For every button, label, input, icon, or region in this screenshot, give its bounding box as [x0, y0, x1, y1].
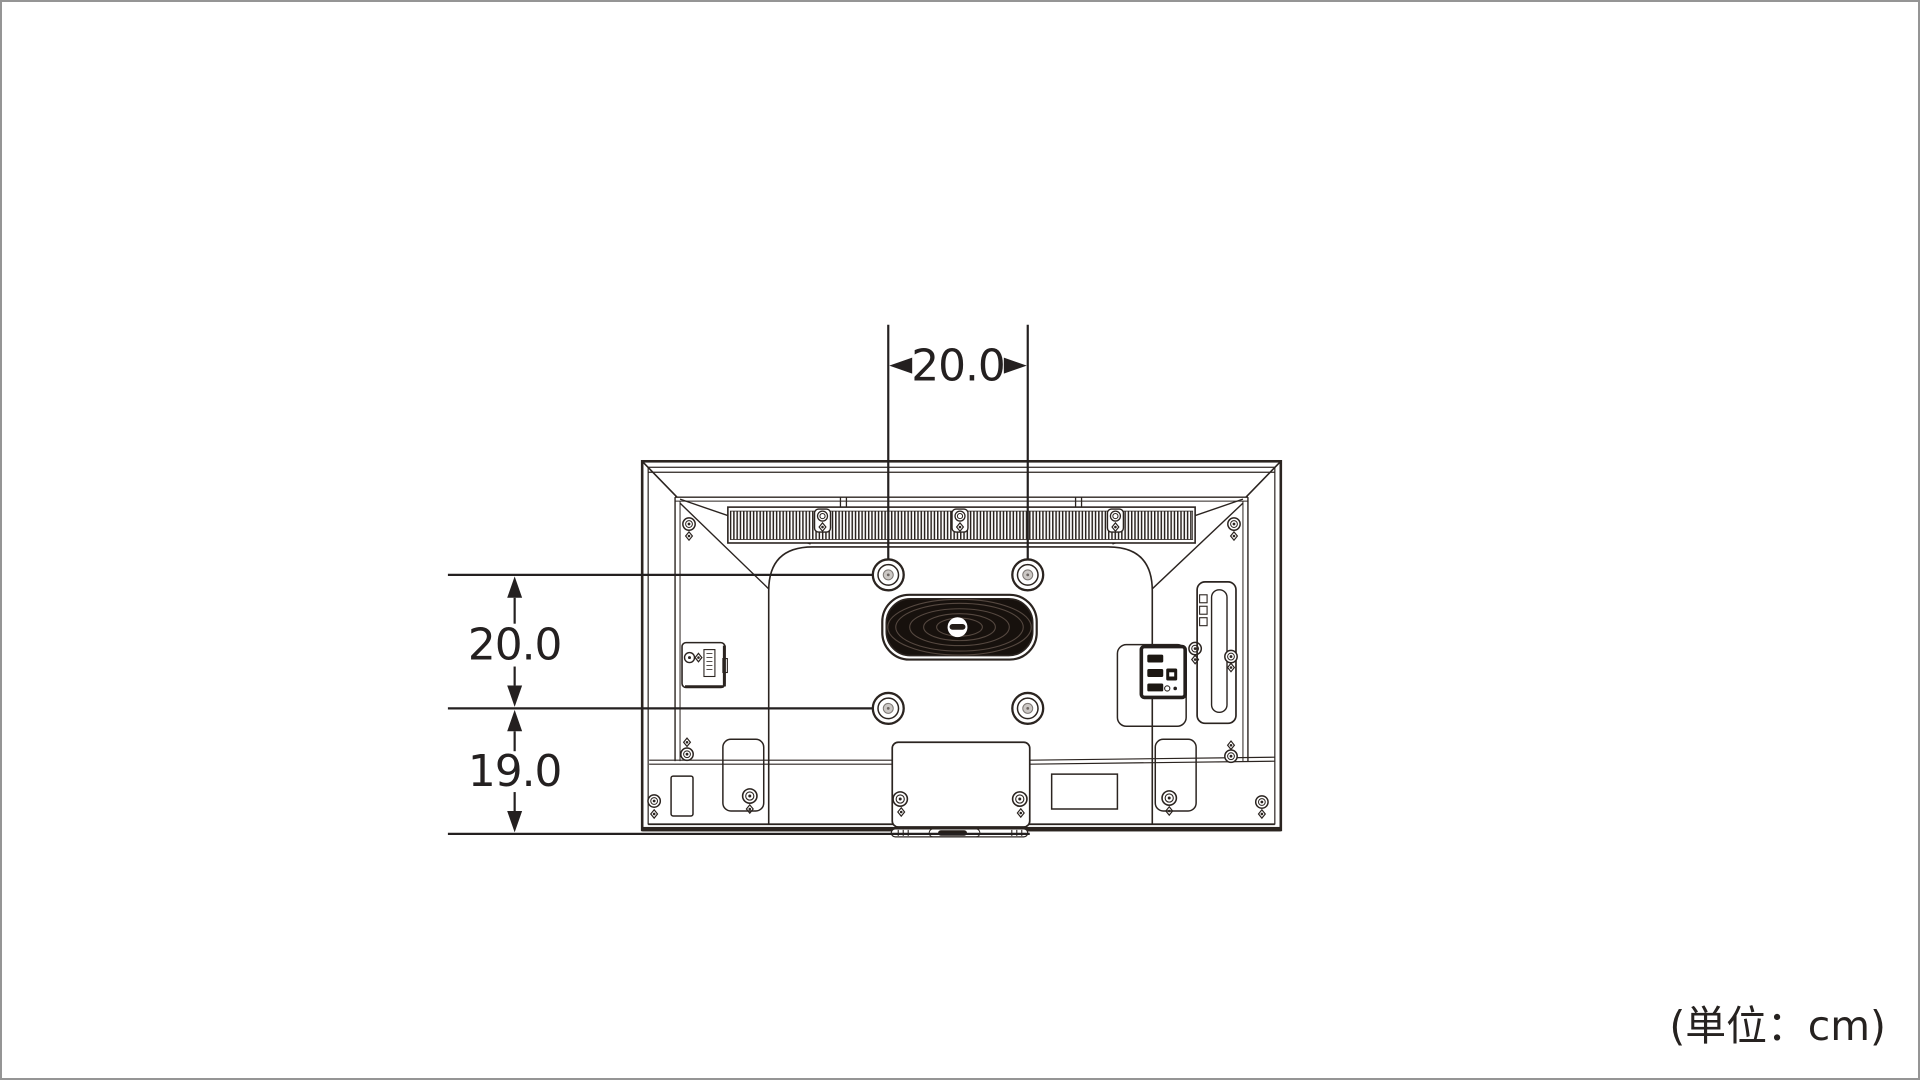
- speaker-center-slot: [950, 624, 966, 630]
- arrow-up-icon: [507, 576, 522, 597]
- vesa-hole-bottom-right: [1012, 693, 1043, 724]
- hdmi-panel: [1117, 642, 1201, 726]
- arrow-right-icon: [1004, 358, 1027, 374]
- arrow-down-icon: [507, 685, 522, 706]
- dim-top-width-label: 20.0: [911, 341, 1005, 392]
- ventilation-grille: [728, 507, 1195, 543]
- diagram-page: 20.0 20.0 19.0 (単位：cm): [0, 0, 1920, 1080]
- vesa-hole-top-left: [873, 559, 904, 590]
- tv-back-panel: [642, 461, 1281, 837]
- ac-input-panel: [682, 643, 727, 688]
- dimension-left-upper: 20.0: [468, 576, 562, 707]
- bottom-strip: [648, 739, 1268, 827]
- label-plate: [1052, 774, 1118, 809]
- arrow-left-icon: [889, 358, 912, 374]
- unit-note: (単位：cm): [1669, 1002, 1886, 1050]
- stand-column-cover: [892, 742, 1029, 827]
- dim-left-upper-label: 20.0: [468, 620, 562, 671]
- arrow-up-icon: [507, 710, 522, 731]
- ir-window: [671, 776, 693, 816]
- tv-rear-dimension-diagram: 20.0 20.0 19.0 (単位：cm): [2, 2, 1918, 1078]
- dim-left-lower-label: 19.0: [468, 746, 562, 797]
- vesa-hole-top-right: [1012, 559, 1043, 590]
- speaker-unit: [882, 595, 1036, 660]
- side-slot-panel: [1197, 582, 1237, 723]
- arrow-down-icon: [507, 811, 522, 832]
- dimension-left-lower: 19.0: [468, 710, 562, 833]
- vesa-hole-bottom-left: [873, 693, 904, 724]
